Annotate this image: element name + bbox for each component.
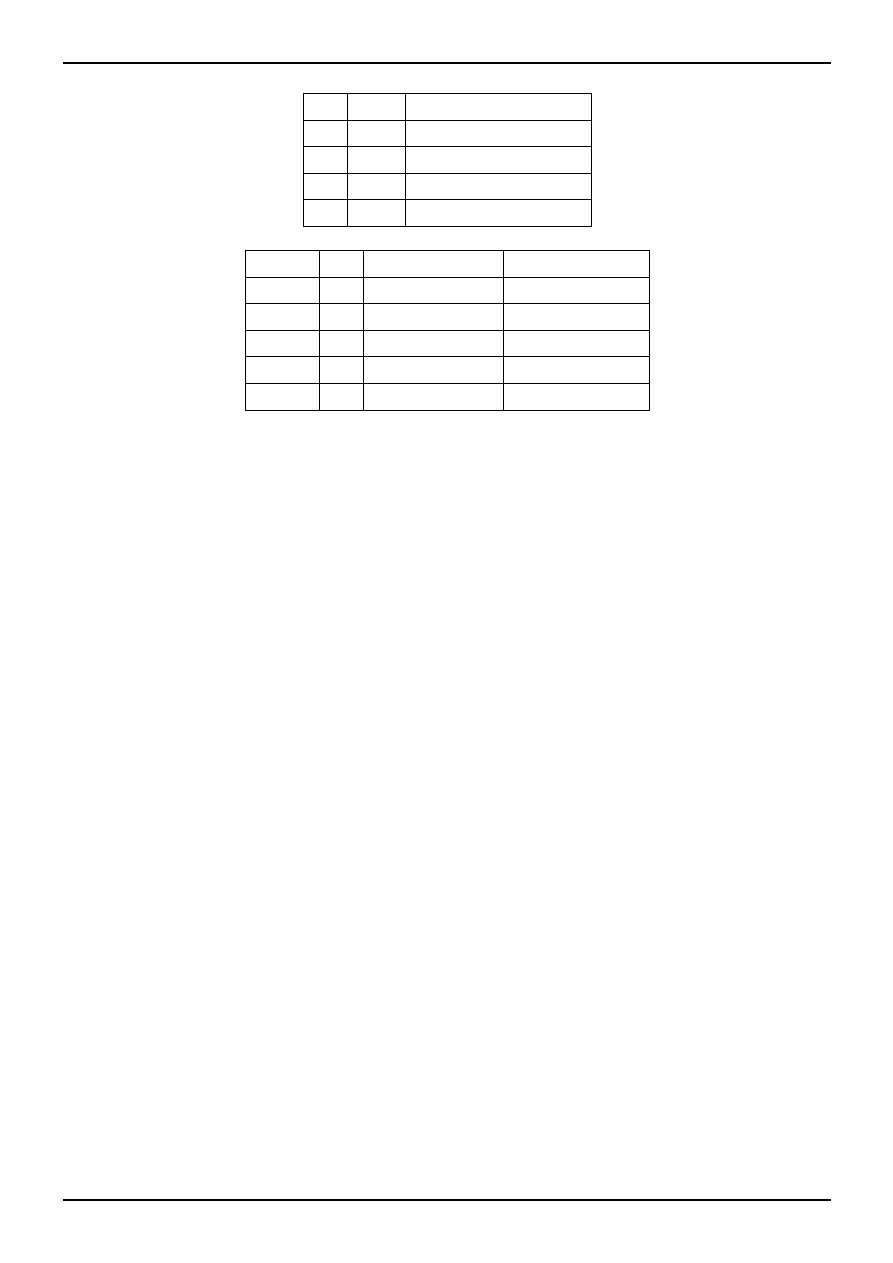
table-row [246,383,650,410]
table-row [246,304,650,331]
table-cell [320,357,364,384]
table-cell [348,173,406,200]
table-cell [504,304,650,331]
table-cell [504,277,650,304]
table-cell [364,277,504,304]
table-cell [320,383,364,410]
table-cell [304,147,348,174]
table-cell [364,304,504,331]
table-1 [303,93,592,227]
table-cell [320,277,364,304]
table-cell [246,251,320,278]
table-row [304,200,592,227]
table-row [304,94,592,121]
document-page [0,0,893,1263]
table-row [246,357,650,384]
table-cell [406,173,592,200]
table-cell [304,94,348,121]
table-cell [348,200,406,227]
table-cell [348,147,406,174]
table-cell [504,383,650,410]
table-cell [304,120,348,147]
table-cell [304,200,348,227]
table-cell [364,357,504,384]
table-cell [320,330,364,357]
table-cell [246,330,320,357]
table-cell [364,383,504,410]
table-row [246,277,650,304]
table-cell [364,330,504,357]
table-cell [320,251,364,278]
table-1-body [304,94,592,227]
table-cell [246,277,320,304]
table-row [246,330,650,357]
table-cell [406,200,592,227]
table-cell [504,330,650,357]
table-cell [406,147,592,174]
table-cell [246,383,320,410]
footer-rule [63,1199,831,1201]
table-row [246,251,650,278]
table-cell [320,304,364,331]
table-cell [504,251,650,278]
table-cell [364,251,504,278]
table-cell [406,94,592,121]
table-cell [246,304,320,331]
table-2-body [246,251,650,411]
table-cell [246,357,320,384]
table-cell [406,120,592,147]
table-cell [304,173,348,200]
table-cell [348,120,406,147]
header-rule [63,62,831,64]
table-row [304,173,592,200]
table-cell [504,357,650,384]
table-2 [245,250,650,411]
table-row [304,120,592,147]
table-cell [348,94,406,121]
table-row [304,147,592,174]
